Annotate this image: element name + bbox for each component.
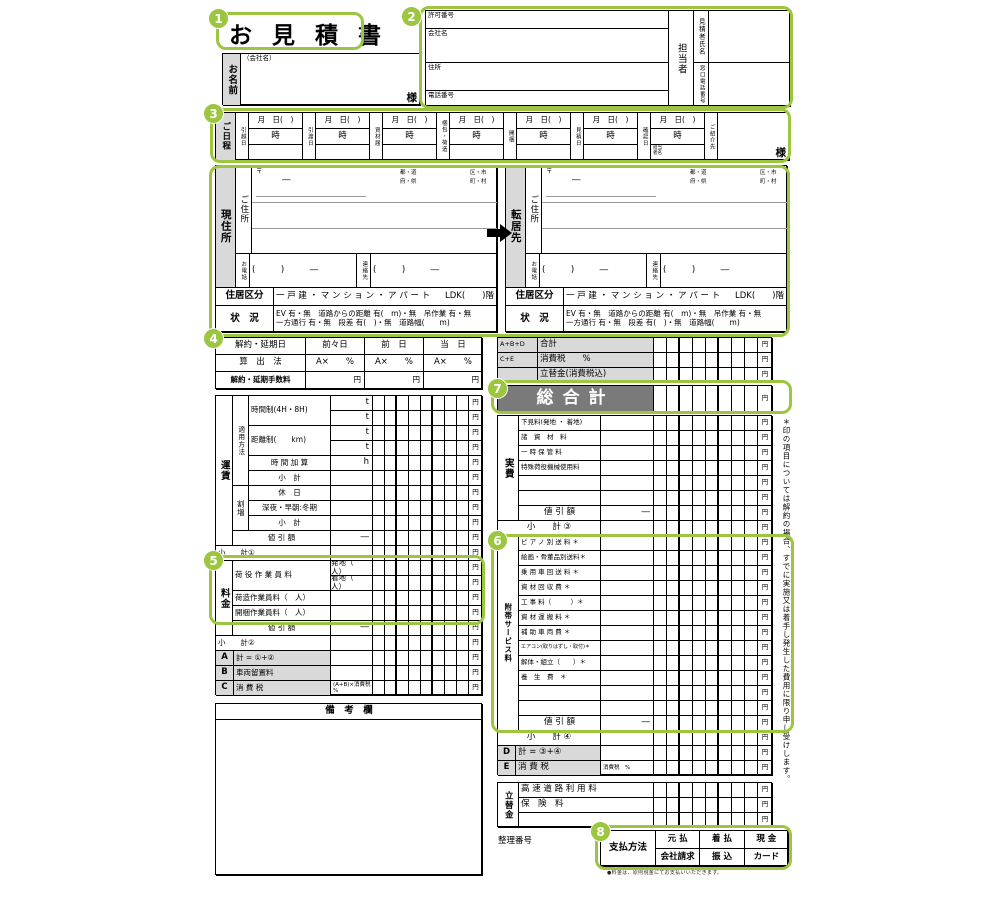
yen-label: 円 bbox=[758, 551, 773, 566]
moving-estimate-form: お 見 積 書 整理番号 ●料金は、原則現金にてお支払いいただきます。 ＊印の項… bbox=[0, 0, 1000, 900]
amount-digit-box bbox=[373, 666, 385, 681]
schedule-date-cell: 月 日( ) bbox=[450, 113, 504, 129]
amount-digit-box bbox=[421, 471, 433, 486]
amount-digit-box bbox=[693, 461, 706, 476]
amount-digit-box bbox=[373, 651, 385, 666]
amount-digit-box bbox=[706, 671, 719, 686]
amount-digit-box bbox=[397, 546, 409, 561]
amount-digit-box bbox=[680, 551, 693, 566]
amount-digit-box bbox=[680, 761, 693, 776]
payment-option: 振 込 bbox=[700, 849, 744, 867]
remarks-header: 備 考 欄 bbox=[216, 704, 483, 720]
amount-digit-box bbox=[385, 471, 397, 486]
row-value-area bbox=[601, 536, 654, 551]
payment-option: 着 払 bbox=[700, 831, 744, 849]
amount-digit-box bbox=[693, 671, 706, 686]
amount-digit-box bbox=[457, 681, 469, 696]
amount-digit-box bbox=[409, 621, 421, 636]
yen-label: 円 bbox=[469, 471, 483, 486]
amount-digit-box bbox=[706, 353, 719, 368]
yen-label: 円 bbox=[469, 441, 483, 456]
amount-digit-box bbox=[667, 536, 680, 551]
schedule-date-cell: 月 日( ) bbox=[584, 113, 638, 129]
amount-digit-box bbox=[719, 671, 732, 686]
amount-digit-box bbox=[745, 416, 758, 431]
amount-digit-box bbox=[421, 501, 433, 516]
yen-label: 円 bbox=[469, 681, 483, 696]
row-value-area bbox=[601, 626, 654, 641]
row-label: 補 助 車 両 費 ＊ bbox=[519, 626, 601, 641]
row-label: 深夜・早朝:冬期 bbox=[249, 501, 331, 516]
amount-digit-box bbox=[421, 411, 433, 426]
contact-field: ( ) ― bbox=[661, 254, 788, 288]
amount-digit-box bbox=[706, 461, 719, 476]
amount-digit-box bbox=[680, 536, 693, 551]
amount-digit-box bbox=[732, 416, 745, 431]
amount-digit-box bbox=[680, 798, 693, 813]
amount-digit-box bbox=[654, 656, 667, 671]
amount-digit-box bbox=[433, 651, 445, 666]
row-label: 計 = ③+④ bbox=[516, 746, 601, 761]
payment-option: カード bbox=[745, 849, 789, 867]
amount-digit-box bbox=[719, 338, 732, 353]
amount-digit-box bbox=[706, 731, 719, 746]
cancel-day-col: 前々日 bbox=[306, 338, 365, 355]
amount-digit-box bbox=[693, 813, 706, 828]
amount-digit-box bbox=[667, 596, 680, 611]
row-value-area bbox=[331, 516, 373, 531]
confirm-staff-note: 担当者名 bbox=[653, 146, 663, 156]
row-value-area bbox=[601, 731, 654, 746]
amount-digit-box bbox=[433, 576, 445, 591]
amount-digit-box bbox=[732, 798, 745, 813]
amount-digit-box bbox=[654, 626, 667, 641]
yen-label: 円 bbox=[469, 606, 483, 621]
summary-code: A+B+D bbox=[498, 338, 538, 353]
row-value-area bbox=[601, 686, 654, 701]
city-label: 区・市 bbox=[470, 170, 494, 178]
address-field: 〒―都・道府・県区・市町・村 bbox=[542, 166, 788, 254]
amount-digit-box bbox=[409, 561, 421, 576]
amount-digit-box bbox=[706, 338, 719, 353]
amount-digit-box bbox=[433, 441, 445, 456]
yen-label: 円 bbox=[758, 798, 773, 813]
row-value-area bbox=[601, 746, 654, 761]
amount-digit-box bbox=[667, 783, 680, 798]
row-label: 諸 資 材 料 bbox=[519, 431, 601, 446]
pref-label: 都・道 bbox=[690, 170, 714, 178]
amount-digit-box bbox=[397, 531, 409, 546]
permit-number-field: 許可番号 bbox=[426, 11, 669, 29]
amount-digit-box bbox=[732, 731, 745, 746]
pref-label: 都・道 bbox=[400, 170, 424, 178]
schedule-blank-cell bbox=[249, 145, 303, 161]
annotation-badge-3: 3 bbox=[203, 103, 224, 124]
yen-label: 円 bbox=[758, 521, 773, 536]
new-address-address-section: 転居先ご住所〒―都・道府・県区・市町・村お電話( ) ―連絡先( ) ―住居区分… bbox=[505, 165, 787, 332]
amount-digit-box bbox=[680, 813, 693, 828]
yen-label: 円 bbox=[469, 516, 483, 531]
referral-vlabel: ご紹介先 bbox=[705, 113, 718, 161]
yen-label: 円 bbox=[469, 411, 483, 426]
amount-digit-box bbox=[719, 761, 732, 776]
row-label: 絵画・骨董品別送料＊ bbox=[519, 551, 601, 566]
amount-digit-box bbox=[421, 516, 433, 531]
amount-digit-box bbox=[409, 486, 421, 501]
amount-digit-box bbox=[654, 701, 667, 716]
yen-label: 円 bbox=[469, 666, 483, 681]
amount-digit-box bbox=[385, 456, 397, 471]
yen-label: 円 bbox=[758, 611, 773, 626]
row-value-area bbox=[331, 486, 373, 501]
contact-vlabel: 連絡先 bbox=[647, 254, 661, 288]
amount-digit-box bbox=[706, 813, 719, 828]
amount-digit-box bbox=[745, 783, 758, 798]
yen-label: 円 bbox=[758, 338, 773, 353]
amount-digit-box bbox=[667, 746, 680, 761]
actual-costs-vheader: 実費 bbox=[498, 416, 519, 521]
amount-digit-box bbox=[433, 561, 445, 576]
row-value-area bbox=[331, 666, 373, 681]
amount-digit-box bbox=[445, 636, 457, 651]
amount-digit-box bbox=[654, 798, 667, 813]
amount-digit-box bbox=[693, 596, 706, 611]
cancel-day-col: 前 日 bbox=[365, 338, 424, 355]
amount-digit-box bbox=[654, 536, 667, 551]
row-value-area bbox=[331, 501, 373, 516]
row-value-area: 消費税 % bbox=[601, 761, 654, 776]
row-label: 資 材 回 収 費 ＊ bbox=[519, 581, 601, 596]
amount-digit-box bbox=[667, 731, 680, 746]
city-label: 区・市 bbox=[760, 170, 784, 178]
row-code: D bbox=[498, 746, 516, 761]
summary-label: 合計 bbox=[538, 338, 654, 353]
amount-digit-box bbox=[706, 431, 719, 446]
amount-digit-box bbox=[745, 536, 758, 551]
customer-name-box: お名前（会社名）様 bbox=[222, 53, 420, 105]
row-value-area bbox=[601, 656, 654, 671]
row-value-area bbox=[601, 461, 654, 476]
amount-digit-box bbox=[385, 396, 397, 411]
row-label: 車両留置料 bbox=[234, 666, 331, 681]
amount-digit-box bbox=[680, 581, 693, 596]
calc-method-value: A× % bbox=[424, 355, 483, 372]
services-table: ピ ア ノ 別 送 料 ＊円絵画・骨董品別送料＊円乗 用 車 回 送 料 ＊円資… bbox=[497, 535, 772, 775]
amount-digit-box bbox=[397, 396, 409, 411]
amount-digit-box bbox=[397, 456, 409, 471]
amount-digit-box bbox=[457, 621, 469, 636]
cancel-day-col: 当 日 bbox=[424, 338, 483, 355]
amount-digit-box bbox=[409, 501, 421, 516]
amount-digit-box bbox=[680, 686, 693, 701]
amount-digit-box bbox=[719, 386, 732, 413]
amount-digit-box bbox=[719, 476, 732, 491]
amount-digit-box bbox=[373, 621, 385, 636]
freight-charges-table: t円t円t円t円時 間 加 算h円小 計円休 日円深夜・早朝:冬期円小 計円値 … bbox=[215, 395, 482, 695]
amount-digit-box bbox=[745, 686, 758, 701]
amount-digit-box bbox=[667, 686, 680, 701]
amount-digit-box bbox=[667, 813, 680, 828]
amount-digit-box bbox=[654, 491, 667, 506]
amount-digit-box bbox=[654, 566, 667, 581]
annotation-badge-7: 7 bbox=[487, 378, 508, 399]
amount-digit-box bbox=[654, 716, 667, 731]
amount-digit-box bbox=[421, 546, 433, 561]
calc-method-value: A× % bbox=[306, 355, 365, 372]
amount-digit-box bbox=[654, 746, 667, 761]
amount-digit-box bbox=[719, 416, 732, 431]
amount-digit-box bbox=[732, 536, 745, 551]
amount-digit-box bbox=[719, 581, 732, 596]
row-label bbox=[519, 701, 601, 716]
amount-digit-box bbox=[693, 551, 706, 566]
amount-digit-box bbox=[457, 651, 469, 666]
amount-digit-box bbox=[706, 386, 719, 413]
row-value-area: 発地（ 人） bbox=[331, 561, 373, 576]
amount-digit-box bbox=[732, 446, 745, 461]
amount-digit-box bbox=[385, 591, 397, 606]
amount-digit-box bbox=[693, 506, 706, 521]
amount-digit-box bbox=[654, 686, 667, 701]
amount-digit-box bbox=[745, 596, 758, 611]
summary-label: 消費税 % bbox=[538, 353, 654, 368]
yen-label: 円 bbox=[758, 353, 773, 368]
amount-digit-box bbox=[421, 666, 433, 681]
calc-method-value: A× % bbox=[365, 355, 424, 372]
amount-digit-box bbox=[745, 671, 758, 686]
amount-digit-box bbox=[706, 626, 719, 641]
amount-digit-box bbox=[693, 731, 706, 746]
totals-summary-table: A+B+D合計円C+E消費税 %円立替金(消費税込)円 bbox=[497, 337, 772, 382]
cancellation-side-note: ＊印の項目については解約の場合、すでに実施又は着手し発生した費用に限り申し受けし… bbox=[776, 418, 790, 788]
yen-label: 円 bbox=[469, 531, 483, 546]
yen-label: 円 bbox=[758, 491, 773, 506]
amount-digit-box bbox=[719, 731, 732, 746]
amount-digit-box bbox=[397, 561, 409, 576]
amount-digit-box bbox=[667, 581, 680, 596]
row-label: 開梱作業員料（ 人） bbox=[233, 606, 331, 621]
row-value-area bbox=[601, 416, 654, 431]
amount-digit-box bbox=[706, 506, 719, 521]
amount-digit-box bbox=[397, 576, 409, 591]
amount-digit-box bbox=[680, 731, 693, 746]
customer-name-field: （会社名）様 bbox=[241, 54, 421, 106]
yen-label: 円 bbox=[758, 416, 773, 431]
apply-method-vheader: 適用方法 bbox=[233, 396, 249, 486]
amount-digit-box bbox=[680, 416, 693, 431]
amount-digit-box bbox=[706, 798, 719, 813]
phone-vlabel: お電話 bbox=[236, 254, 250, 288]
amount-digit-box bbox=[745, 368, 758, 383]
amount-digit-box bbox=[445, 516, 457, 531]
amount-digit-box bbox=[373, 546, 385, 561]
amount-digit-box bbox=[693, 521, 706, 536]
amount-digit-box bbox=[373, 516, 385, 531]
amount-digit-box bbox=[706, 701, 719, 716]
amount-digit-box bbox=[680, 431, 693, 446]
payment-option: 現 金 bbox=[745, 831, 789, 849]
amount-digit-box bbox=[397, 666, 409, 681]
amount-digit-box bbox=[667, 626, 680, 641]
yen-label: 円 bbox=[758, 686, 773, 701]
amount-digit-box bbox=[433, 426, 445, 441]
amount-digit-box bbox=[667, 566, 680, 581]
amount-digit-box bbox=[732, 566, 745, 581]
actual-costs-table: 下見料(発地 ・ 着地)円諸 資 材 料円一 時 保 管 料円特殊荷役機械使用料… bbox=[497, 415, 772, 535]
amount-digit-box bbox=[654, 476, 667, 491]
postal-underline bbox=[546, 196, 656, 197]
labor-fee-vheader: 料金 bbox=[216, 561, 233, 636]
cancel-fee-cell: 円 bbox=[306, 372, 365, 390]
address-field: 〒―都・道府・県区・市町・村 bbox=[252, 166, 498, 254]
schedule-col-label-1: 引越日 bbox=[236, 113, 249, 161]
arrow-head bbox=[500, 224, 512, 242]
amount-digit-box bbox=[385, 501, 397, 516]
yen-label: 円 bbox=[758, 446, 773, 461]
amount-digit-box bbox=[719, 611, 732, 626]
amount-digit-box bbox=[373, 486, 385, 501]
amount-digit-box bbox=[693, 686, 706, 701]
schedule-col-label-7: 確認日 bbox=[638, 113, 651, 161]
amount-digit-box bbox=[680, 461, 693, 476]
amount-digit-box bbox=[693, 338, 706, 353]
row-value-area bbox=[601, 446, 654, 461]
condition-line2: 一方通行 有・無 段差 有( )・無 道路幅( m) bbox=[566, 319, 740, 328]
amount-digit-box bbox=[680, 368, 693, 383]
amount-digit-box bbox=[433, 546, 445, 561]
amount-digit-box bbox=[693, 353, 706, 368]
grand-total-label: 総合計 bbox=[498, 386, 654, 413]
amount-digit-box bbox=[385, 531, 397, 546]
amount-digit-box bbox=[421, 531, 433, 546]
amount-digit-box bbox=[373, 441, 385, 456]
row-code: B bbox=[216, 666, 234, 681]
amount-digit-box bbox=[719, 798, 732, 813]
yen-label: 円 bbox=[758, 431, 773, 446]
amount-digit-box bbox=[421, 396, 433, 411]
amount-digit-box bbox=[457, 531, 469, 546]
row-label: 小 計① bbox=[216, 546, 331, 561]
contact-field: ( ) ― bbox=[371, 254, 498, 288]
amount-digit-box bbox=[719, 813, 732, 828]
row-value-area: t bbox=[331, 426, 373, 441]
amount-digit-box bbox=[445, 411, 457, 426]
amount-digit-box bbox=[745, 626, 758, 641]
yen-label: 円 bbox=[469, 636, 483, 651]
amount-digit-box bbox=[409, 651, 421, 666]
cancel-date-label: 解約・延期日 bbox=[216, 338, 306, 355]
row-label: エアコン(取りはずし・取付)＊ bbox=[519, 641, 601, 656]
amount-digit-box bbox=[457, 501, 469, 516]
amount-digit-box bbox=[409, 516, 421, 531]
row-label: 養 生 費 ＊ bbox=[519, 671, 601, 686]
amount-digit-box bbox=[706, 416, 719, 431]
amount-digit-box bbox=[654, 431, 667, 446]
amount-digit-box bbox=[706, 746, 719, 761]
amount-digit-box bbox=[409, 411, 421, 426]
amount-digit-box bbox=[680, 566, 693, 581]
yen-label: 円 bbox=[469, 651, 483, 666]
amount-digit-box bbox=[693, 416, 706, 431]
amount-digit-box bbox=[719, 783, 732, 798]
row-value-area: h bbox=[331, 456, 373, 471]
amount-digit-box bbox=[732, 596, 745, 611]
amount-digit-box bbox=[457, 396, 469, 411]
amount-digit-box bbox=[745, 716, 758, 731]
row-value-area bbox=[601, 566, 654, 581]
amount-digit-box bbox=[732, 783, 745, 798]
amount-digit-box bbox=[445, 576, 457, 591]
amount-digit-box bbox=[667, 353, 680, 368]
amount-digit-box bbox=[732, 551, 745, 566]
amount-digit-box bbox=[445, 546, 457, 561]
remarks-field bbox=[216, 720, 483, 876]
amount-digit-box bbox=[433, 501, 445, 516]
amount-digit-box bbox=[654, 581, 667, 596]
amount-digit-box bbox=[373, 471, 385, 486]
housing-type-field: 一 戸 建 ・ マ ン シ ョ ン ・ ア パ ー トLDK( )階 bbox=[274, 288, 498, 306]
amount-digit-box bbox=[745, 491, 758, 506]
yen-label: 円 bbox=[758, 476, 773, 491]
amount-digit-box bbox=[693, 446, 706, 461]
amount-digit-box bbox=[667, 446, 680, 461]
amount-digit-box bbox=[693, 611, 706, 626]
amount-digit-box bbox=[421, 636, 433, 651]
remarks-box: 備 考 欄 bbox=[215, 703, 482, 875]
postal-underline bbox=[256, 196, 366, 197]
amount-digit-box bbox=[457, 546, 469, 561]
amount-digit-box bbox=[457, 591, 469, 606]
amount-digit-box bbox=[385, 576, 397, 591]
amount-digit-box bbox=[397, 651, 409, 666]
amount-digit-box bbox=[745, 798, 758, 813]
postal-dash: ― bbox=[282, 176, 294, 186]
row-value-area bbox=[601, 476, 654, 491]
amount-digit-box bbox=[385, 441, 397, 456]
amount-digit-box bbox=[457, 456, 469, 471]
row-value-area bbox=[331, 591, 373, 606]
schedule-blank-cell bbox=[316, 145, 370, 161]
amount-digit-box bbox=[745, 461, 758, 476]
row-label-span: 距離制( km) bbox=[249, 426, 331, 456]
ruled-line bbox=[542, 202, 787, 203]
amount-digit-box bbox=[667, 611, 680, 626]
amount-digit-box bbox=[706, 686, 719, 701]
yen-label: 円 bbox=[758, 461, 773, 476]
amount-digit-box bbox=[667, 461, 680, 476]
schedule-blank-cell bbox=[584, 145, 638, 161]
amount-digit-box bbox=[385, 561, 397, 576]
amount-digit-box bbox=[667, 716, 680, 731]
amount-digit-box bbox=[373, 576, 385, 591]
address-vlabel: ご住所 bbox=[526, 166, 542, 254]
amount-digit-box bbox=[680, 521, 693, 536]
yen-label: 円 bbox=[758, 783, 773, 798]
amount-digit-box bbox=[732, 431, 745, 446]
amount-digit-box bbox=[745, 746, 758, 761]
schedule-date-cell: 月 日( ) bbox=[517, 113, 571, 129]
amount-digit-box bbox=[693, 716, 706, 731]
amount-digit-box bbox=[732, 746, 745, 761]
amount-digit-box bbox=[433, 471, 445, 486]
current-address-vheader: 現住所 bbox=[216, 166, 236, 288]
amount-digit-box bbox=[667, 368, 680, 383]
staff-vlabel: 担当者 bbox=[669, 11, 694, 107]
amount-digit-box bbox=[409, 441, 421, 456]
amount-digit-box bbox=[385, 516, 397, 531]
amount-digit-box bbox=[421, 651, 433, 666]
cancellation-table: 解約・延期日前々日前 日当 日算 出 法A× %A× %A× %解約・延期手数料… bbox=[215, 337, 482, 389]
